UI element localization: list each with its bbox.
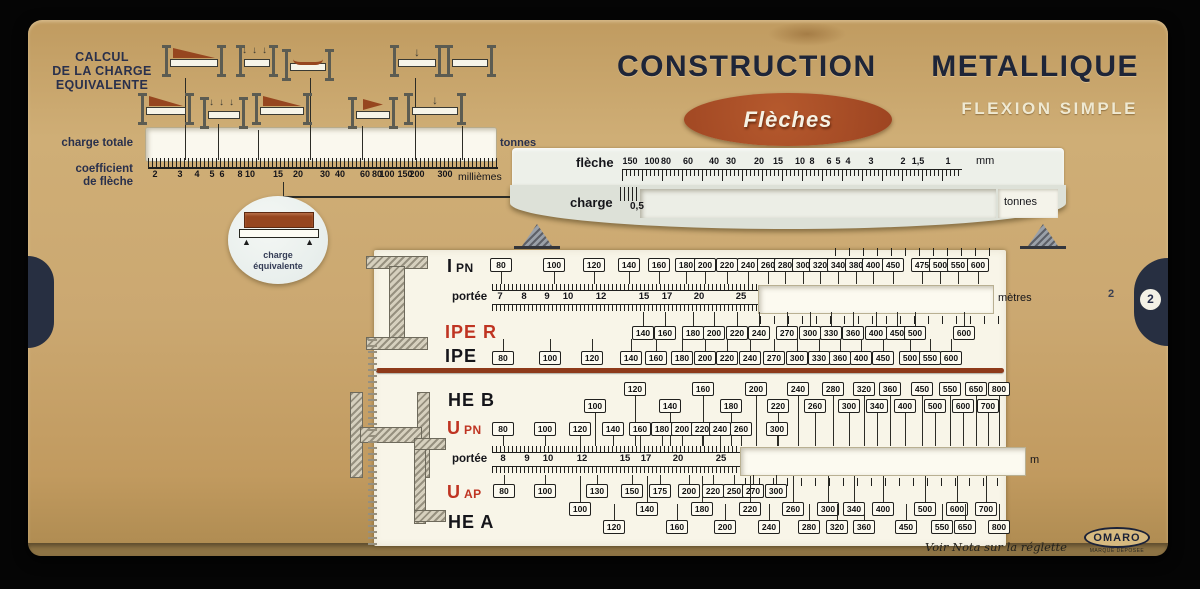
stem-line xyxy=(737,312,738,326)
coefficient-label-1: coefficient xyxy=(48,163,133,175)
size-box: 180 xyxy=(651,422,673,436)
stem-line xyxy=(702,476,703,502)
size-box: 100 xyxy=(534,484,556,498)
tick-strip xyxy=(760,316,1002,324)
size-box: 80 xyxy=(493,484,515,498)
coeff-scale-number: 10 xyxy=(245,169,255,179)
stem-line xyxy=(840,339,841,351)
arrows-load-icon: ↓↓↓ xyxy=(200,97,248,108)
size-box: 160 xyxy=(629,422,651,436)
charge-totale-label: charge totale xyxy=(48,137,133,149)
millieme-unit-label: millièmes xyxy=(458,171,502,183)
coeff-scale-number: 5 xyxy=(209,169,214,179)
fleche-scale-number: 1 xyxy=(945,156,950,166)
stem-line xyxy=(853,312,854,326)
row-label-suffix: PN xyxy=(456,261,474,275)
size-box: 260 xyxy=(804,399,826,413)
i-post-icon xyxy=(162,45,171,77)
stem-line xyxy=(660,475,661,484)
size-box: 200 xyxy=(714,520,736,534)
stem-line xyxy=(647,476,648,502)
stem-line xyxy=(803,271,804,284)
stem-line xyxy=(614,504,615,520)
stem-line xyxy=(592,339,593,351)
stem-line xyxy=(897,312,898,326)
row-label: IPE R xyxy=(445,322,497,343)
stem-line xyxy=(785,271,786,284)
load-case-icon xyxy=(252,92,312,126)
load-case-icon: ↓↓↓ xyxy=(236,44,278,78)
i-post-icon xyxy=(389,97,398,129)
triangular-load-icon xyxy=(263,96,301,106)
size-box: 450 xyxy=(895,520,917,534)
size-box: 140 xyxy=(620,351,642,365)
load-case-icon: ↓↓↓ xyxy=(200,96,248,130)
flange xyxy=(414,510,446,522)
load-case-icon xyxy=(444,44,496,78)
stem-line xyxy=(798,395,799,446)
size-box: 140 xyxy=(659,399,681,413)
size-box: 300 xyxy=(799,326,821,340)
fleche-scale-number: 80 xyxy=(661,156,671,166)
stem-line xyxy=(554,271,555,284)
size-box: 220 xyxy=(739,502,761,516)
stem-line xyxy=(958,271,959,284)
size-box: 80 xyxy=(490,258,512,272)
size-box: 100 xyxy=(543,258,565,272)
size-box: 600 xyxy=(953,326,975,340)
coeff-scale-number: 4 xyxy=(194,169,199,179)
stem-line xyxy=(720,435,721,446)
support-base xyxy=(1020,246,1066,249)
size-box: 200 xyxy=(694,258,716,272)
size-box: 330 xyxy=(820,326,842,340)
i-post-icon xyxy=(303,93,312,125)
size-box: 80 xyxy=(492,351,514,365)
size-box: 260 xyxy=(782,502,804,516)
size-box: 550 xyxy=(947,258,969,272)
portee-number: 8 xyxy=(521,291,526,302)
load-block-icon xyxy=(244,212,314,228)
size-box: 270 xyxy=(763,351,785,365)
size-box: 300 xyxy=(786,351,808,365)
stem-line xyxy=(734,475,735,484)
size-box: 100 xyxy=(584,399,606,413)
wedge-load-icon xyxy=(363,99,383,110)
triangular-load-icon xyxy=(149,96,183,106)
connector-line xyxy=(362,126,363,160)
fleche-scale-number: 4 xyxy=(845,156,850,166)
stem-line xyxy=(632,475,633,484)
portee-number: 10 xyxy=(543,453,554,464)
load-case-icon xyxy=(282,48,334,82)
size-box: 240 xyxy=(739,351,761,365)
stem-line xyxy=(820,271,821,284)
stem-line xyxy=(703,395,704,446)
size-box: 360 xyxy=(879,382,901,396)
stem-line xyxy=(951,339,952,351)
size-box: 320 xyxy=(826,520,848,534)
stem-line xyxy=(873,271,874,284)
row-label-text: HE B xyxy=(448,390,495,411)
i-post-icon xyxy=(487,45,496,77)
size-box: 400 xyxy=(894,399,916,413)
size-box: 160 xyxy=(648,258,670,272)
beam-icon xyxy=(244,59,270,67)
size-box: 500 xyxy=(899,351,921,365)
fleche-scale-number: 10 xyxy=(795,156,805,166)
stem-line xyxy=(750,339,751,351)
triangular-load-icon xyxy=(173,48,215,58)
stem-line xyxy=(774,339,775,351)
row-label-text: U xyxy=(447,418,461,439)
stem-line xyxy=(750,476,751,502)
size-box: 220 xyxy=(716,351,738,365)
stem-line xyxy=(503,339,504,351)
size-box: 140 xyxy=(602,422,624,436)
portee-number: 20 xyxy=(673,453,684,464)
stem-line xyxy=(662,435,663,446)
title-line: EQUIVALENTE xyxy=(52,78,152,92)
tick-strip xyxy=(492,284,758,291)
size-box: 450 xyxy=(872,351,894,365)
coeff-scale-number: 60 xyxy=(360,169,370,179)
stem-line xyxy=(893,271,894,284)
tick-strip xyxy=(492,466,740,473)
size-box: 220 xyxy=(716,258,738,272)
size-box: 150 xyxy=(621,484,643,498)
stem-line xyxy=(864,504,865,520)
stem-line xyxy=(905,412,906,446)
size-box: 600 xyxy=(940,351,962,365)
stem-line xyxy=(656,339,657,351)
stem-line xyxy=(854,476,855,502)
fleches-badge: Flèches xyxy=(684,93,892,146)
load-case-icon xyxy=(138,92,194,126)
size-box: 550 xyxy=(931,520,953,534)
stem-line xyxy=(776,475,777,484)
connector-line xyxy=(258,130,259,160)
i-post-icon xyxy=(282,49,291,81)
size-box: 550 xyxy=(919,351,941,365)
size-box: 240 xyxy=(709,422,731,436)
stem-line xyxy=(748,271,749,284)
portee-label: portée xyxy=(452,453,487,465)
i-post-icon xyxy=(138,93,147,125)
load-case-icon xyxy=(162,44,226,78)
size-box: 130 xyxy=(586,484,608,498)
slider-slot xyxy=(640,189,996,218)
beam-icon xyxy=(208,111,240,119)
size-box: 600 xyxy=(952,399,974,413)
connector-line xyxy=(462,126,463,160)
size-box: 260 xyxy=(730,422,752,436)
size-box: 450 xyxy=(882,258,904,272)
point-load-icon: ↓ xyxy=(404,93,466,107)
fleche-scale-number: 8 xyxy=(809,156,814,166)
row-label-text: IPE R xyxy=(445,322,497,343)
beam-icon xyxy=(398,59,436,67)
stem-line xyxy=(861,339,862,351)
stem-line xyxy=(925,476,926,502)
point-load-icon: ↓ xyxy=(390,45,444,59)
stem-line xyxy=(999,504,1000,520)
size-box: 450 xyxy=(911,382,933,396)
scale-window xyxy=(758,285,994,314)
size-box: 200 xyxy=(678,484,700,498)
stem-line xyxy=(741,435,742,446)
size-box: 800 xyxy=(988,520,1010,534)
stem-line xyxy=(777,435,778,446)
size-box: 700 xyxy=(975,502,997,516)
size-box: 140 xyxy=(632,326,654,340)
stem-line xyxy=(935,412,936,446)
nota-text: Voir Nota sur la réglette xyxy=(925,540,1067,554)
coeff-scale-number: 30 xyxy=(320,169,330,179)
stem-line xyxy=(613,435,614,446)
stem-line xyxy=(849,412,850,446)
edge-hatch xyxy=(368,335,377,545)
stem-line xyxy=(797,339,798,351)
stem-line xyxy=(883,476,884,502)
charge-totale-window xyxy=(145,127,497,162)
size-box: 220 xyxy=(767,399,789,413)
beam-icon xyxy=(260,107,304,115)
size-box: 240 xyxy=(787,382,809,396)
stem-line xyxy=(876,312,877,326)
coeff-scale-number: 15 xyxy=(273,169,283,179)
unit-label: m xyxy=(1030,454,1039,466)
size-box: 120 xyxy=(624,382,646,396)
size-box: 300 xyxy=(838,399,860,413)
stem-line xyxy=(677,504,678,520)
size-box: 80 xyxy=(492,422,514,436)
size-box: 100 xyxy=(569,502,591,516)
size-box: 200 xyxy=(671,422,693,436)
stem-line xyxy=(705,339,706,351)
stem-line xyxy=(942,504,943,520)
stem-line xyxy=(793,476,794,502)
row-label-suffix: AP xyxy=(464,487,482,501)
portee-number: 10 xyxy=(563,291,574,302)
scale-window xyxy=(740,447,1026,476)
stem-line xyxy=(988,412,989,446)
stem-line xyxy=(665,312,666,326)
size-box: 120 xyxy=(583,258,605,272)
page-number: 2 xyxy=(1108,288,1114,300)
size-box: 240 xyxy=(737,258,759,272)
stem-line xyxy=(957,476,958,502)
stem-line xyxy=(759,312,760,326)
size-box: 200 xyxy=(745,382,767,396)
stem-line xyxy=(965,504,966,520)
coeff-scale-number: 100 xyxy=(379,169,394,179)
size-box: 300 xyxy=(817,502,839,516)
stem-line xyxy=(727,339,728,351)
stem-line xyxy=(787,312,788,326)
stem-line xyxy=(856,271,857,284)
portee-number: 20 xyxy=(694,291,705,302)
stem-line xyxy=(999,395,1000,446)
portee-number: 15 xyxy=(620,453,631,464)
stem-line xyxy=(906,504,907,520)
stem-line xyxy=(702,435,703,446)
tick-strip xyxy=(492,446,740,453)
load-case-icon xyxy=(348,96,398,130)
stem-line xyxy=(833,395,834,446)
stem-line xyxy=(629,271,630,284)
size-box: 650 xyxy=(965,382,987,396)
unit-label: mètres xyxy=(998,292,1032,304)
circle-label-2: équivalente xyxy=(228,261,328,271)
row-label: UPN xyxy=(447,418,482,439)
size-box: 120 xyxy=(581,351,603,365)
portee-number: 17 xyxy=(662,291,673,302)
size-box: 360 xyxy=(842,326,864,340)
size-box: 180 xyxy=(691,502,713,516)
stem-line xyxy=(686,271,687,284)
size-box: 200 xyxy=(694,351,716,365)
row-label-text: IPE xyxy=(445,346,477,367)
portee-number: 9 xyxy=(544,291,549,302)
size-box: 120 xyxy=(603,520,625,534)
curved-load-icon xyxy=(293,53,323,65)
size-box: 160 xyxy=(692,382,714,396)
stem-line xyxy=(831,312,832,326)
portee-number: 7 xyxy=(497,291,502,302)
coeff-scale-number: 3 xyxy=(177,169,182,179)
stem-line xyxy=(810,312,811,326)
circle-label-1: charge xyxy=(228,250,328,260)
tonnes-unit-label: tonnes xyxy=(1004,196,1037,208)
main-title: CONSTRUCTION METALLIQUE xyxy=(617,50,1139,84)
charge-equivalente-circle: ▲ ▲ charge équivalente xyxy=(228,196,328,284)
stem-line xyxy=(714,312,715,326)
stem-line xyxy=(580,435,581,446)
stem-line xyxy=(838,271,839,284)
size-box: 360 xyxy=(853,520,875,534)
fleche-scale-number: 3 xyxy=(868,156,873,166)
size-box: 650 xyxy=(954,520,976,534)
portee-number: 12 xyxy=(577,453,588,464)
stem-line xyxy=(815,412,816,446)
stem-line xyxy=(922,395,923,446)
portee-number: 12 xyxy=(596,291,607,302)
stem-line xyxy=(890,395,891,446)
stem-line xyxy=(631,339,632,351)
stem-line xyxy=(693,312,694,326)
stem-line xyxy=(580,476,581,502)
size-box: 180 xyxy=(682,326,704,340)
brand-name: OMARO xyxy=(1093,532,1140,544)
fleche-scale-number: 6 xyxy=(826,156,831,166)
size-box: 160 xyxy=(645,351,667,365)
stem-line xyxy=(640,435,641,446)
fleche-scale-number: 60 xyxy=(683,156,693,166)
i-post-icon xyxy=(348,97,357,129)
row-label: HE B xyxy=(448,390,495,411)
size-box: 280 xyxy=(822,382,844,396)
slide-chart-photo: CALCUL DE LA CHARGE EQUIVALENTE charge t… xyxy=(0,0,1200,589)
stem-line xyxy=(930,339,931,351)
upn-profile-icon xyxy=(414,438,444,522)
support-icon: ▲ xyxy=(242,237,251,247)
tick-strip xyxy=(835,248,1000,256)
size-box: 180 xyxy=(720,399,742,413)
charge-scale-value: 0,5 xyxy=(630,201,644,212)
size-box: 240 xyxy=(748,326,770,340)
beam-icon xyxy=(452,59,488,67)
size-box: 220 xyxy=(702,484,724,498)
size-box: 140 xyxy=(636,502,658,516)
mm-unit-label: mm xyxy=(976,155,994,167)
stem-line xyxy=(682,435,683,446)
size-box: 270 xyxy=(776,326,798,340)
stem-line xyxy=(756,395,757,446)
portee-number: 8 xyxy=(500,453,505,464)
stem-line xyxy=(883,339,884,351)
size-box: 100 xyxy=(534,422,556,436)
size-box: 340 xyxy=(866,399,888,413)
stem-line xyxy=(910,339,911,351)
stem-line xyxy=(635,395,636,446)
row-label: UAP xyxy=(447,482,482,503)
size-box: 400 xyxy=(872,502,894,516)
support-icon: ▲ xyxy=(305,237,314,247)
size-box: 240 xyxy=(758,520,780,534)
size-box: 175 xyxy=(649,484,671,498)
stem-line xyxy=(877,412,878,446)
portee-number: 17 xyxy=(641,453,652,464)
stem-line xyxy=(963,412,964,446)
load-case-icon: ↓ xyxy=(404,92,466,126)
fleche-scale-number: 5 xyxy=(835,156,840,166)
size-box: 800 xyxy=(988,382,1010,396)
size-box: 400 xyxy=(865,326,887,340)
wavy-divider xyxy=(376,368,1004,373)
size-box: 500 xyxy=(904,326,926,340)
row-label: HE A xyxy=(448,512,494,533)
stem-line xyxy=(864,395,865,446)
stem-line xyxy=(950,395,951,446)
omaro-logo: OMARO xyxy=(1084,527,1150,548)
stem-line xyxy=(595,412,596,446)
stem-line xyxy=(597,475,598,484)
coeff-scale-number: 8 xyxy=(237,169,242,179)
stem-line xyxy=(837,504,838,520)
row-label-text: U xyxy=(447,482,461,503)
charge-tick-strip xyxy=(620,187,640,201)
title-line: CALCUL xyxy=(52,50,152,64)
charge-scale-label: charge xyxy=(570,195,613,210)
beam-icon xyxy=(170,59,218,67)
stem-line xyxy=(828,476,829,502)
fleche-tick-strip xyxy=(622,169,962,181)
equivalent-load-title: CALCUL DE LA CHARGE EQUIVALENTE xyxy=(52,50,152,92)
coeff-scale-number: 20 xyxy=(293,169,303,179)
stem-line xyxy=(727,271,728,284)
stem-line xyxy=(503,435,504,446)
stain xyxy=(768,22,846,46)
coeff-scale-number: 40 xyxy=(335,169,345,179)
stem-line xyxy=(922,271,923,284)
size-box: 100 xyxy=(539,351,561,365)
stem-line xyxy=(682,339,683,351)
beam-icon xyxy=(146,107,186,115)
stem-line xyxy=(643,312,644,326)
flange xyxy=(414,438,446,450)
size-box: 500 xyxy=(924,399,946,413)
